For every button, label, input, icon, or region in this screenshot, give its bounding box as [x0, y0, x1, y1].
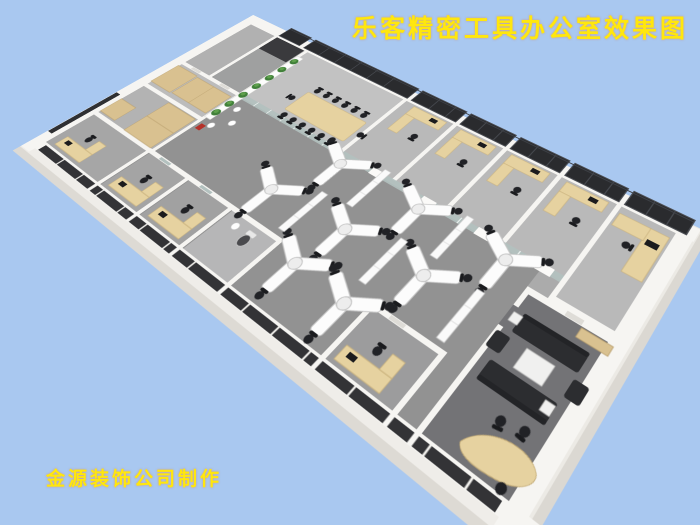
office-render-canvas: 乐客精密工具办公室效果图 金源装饰公司制作 [0, 0, 700, 525]
building-perspective-wrapper [1, 9, 700, 525]
floorplan-scene [1, 9, 700, 525]
watermark-title: 乐客精密工具办公室效果图 [352, 9, 688, 45]
watermark-credit: 金源装饰公司制作 [46, 464, 222, 491]
